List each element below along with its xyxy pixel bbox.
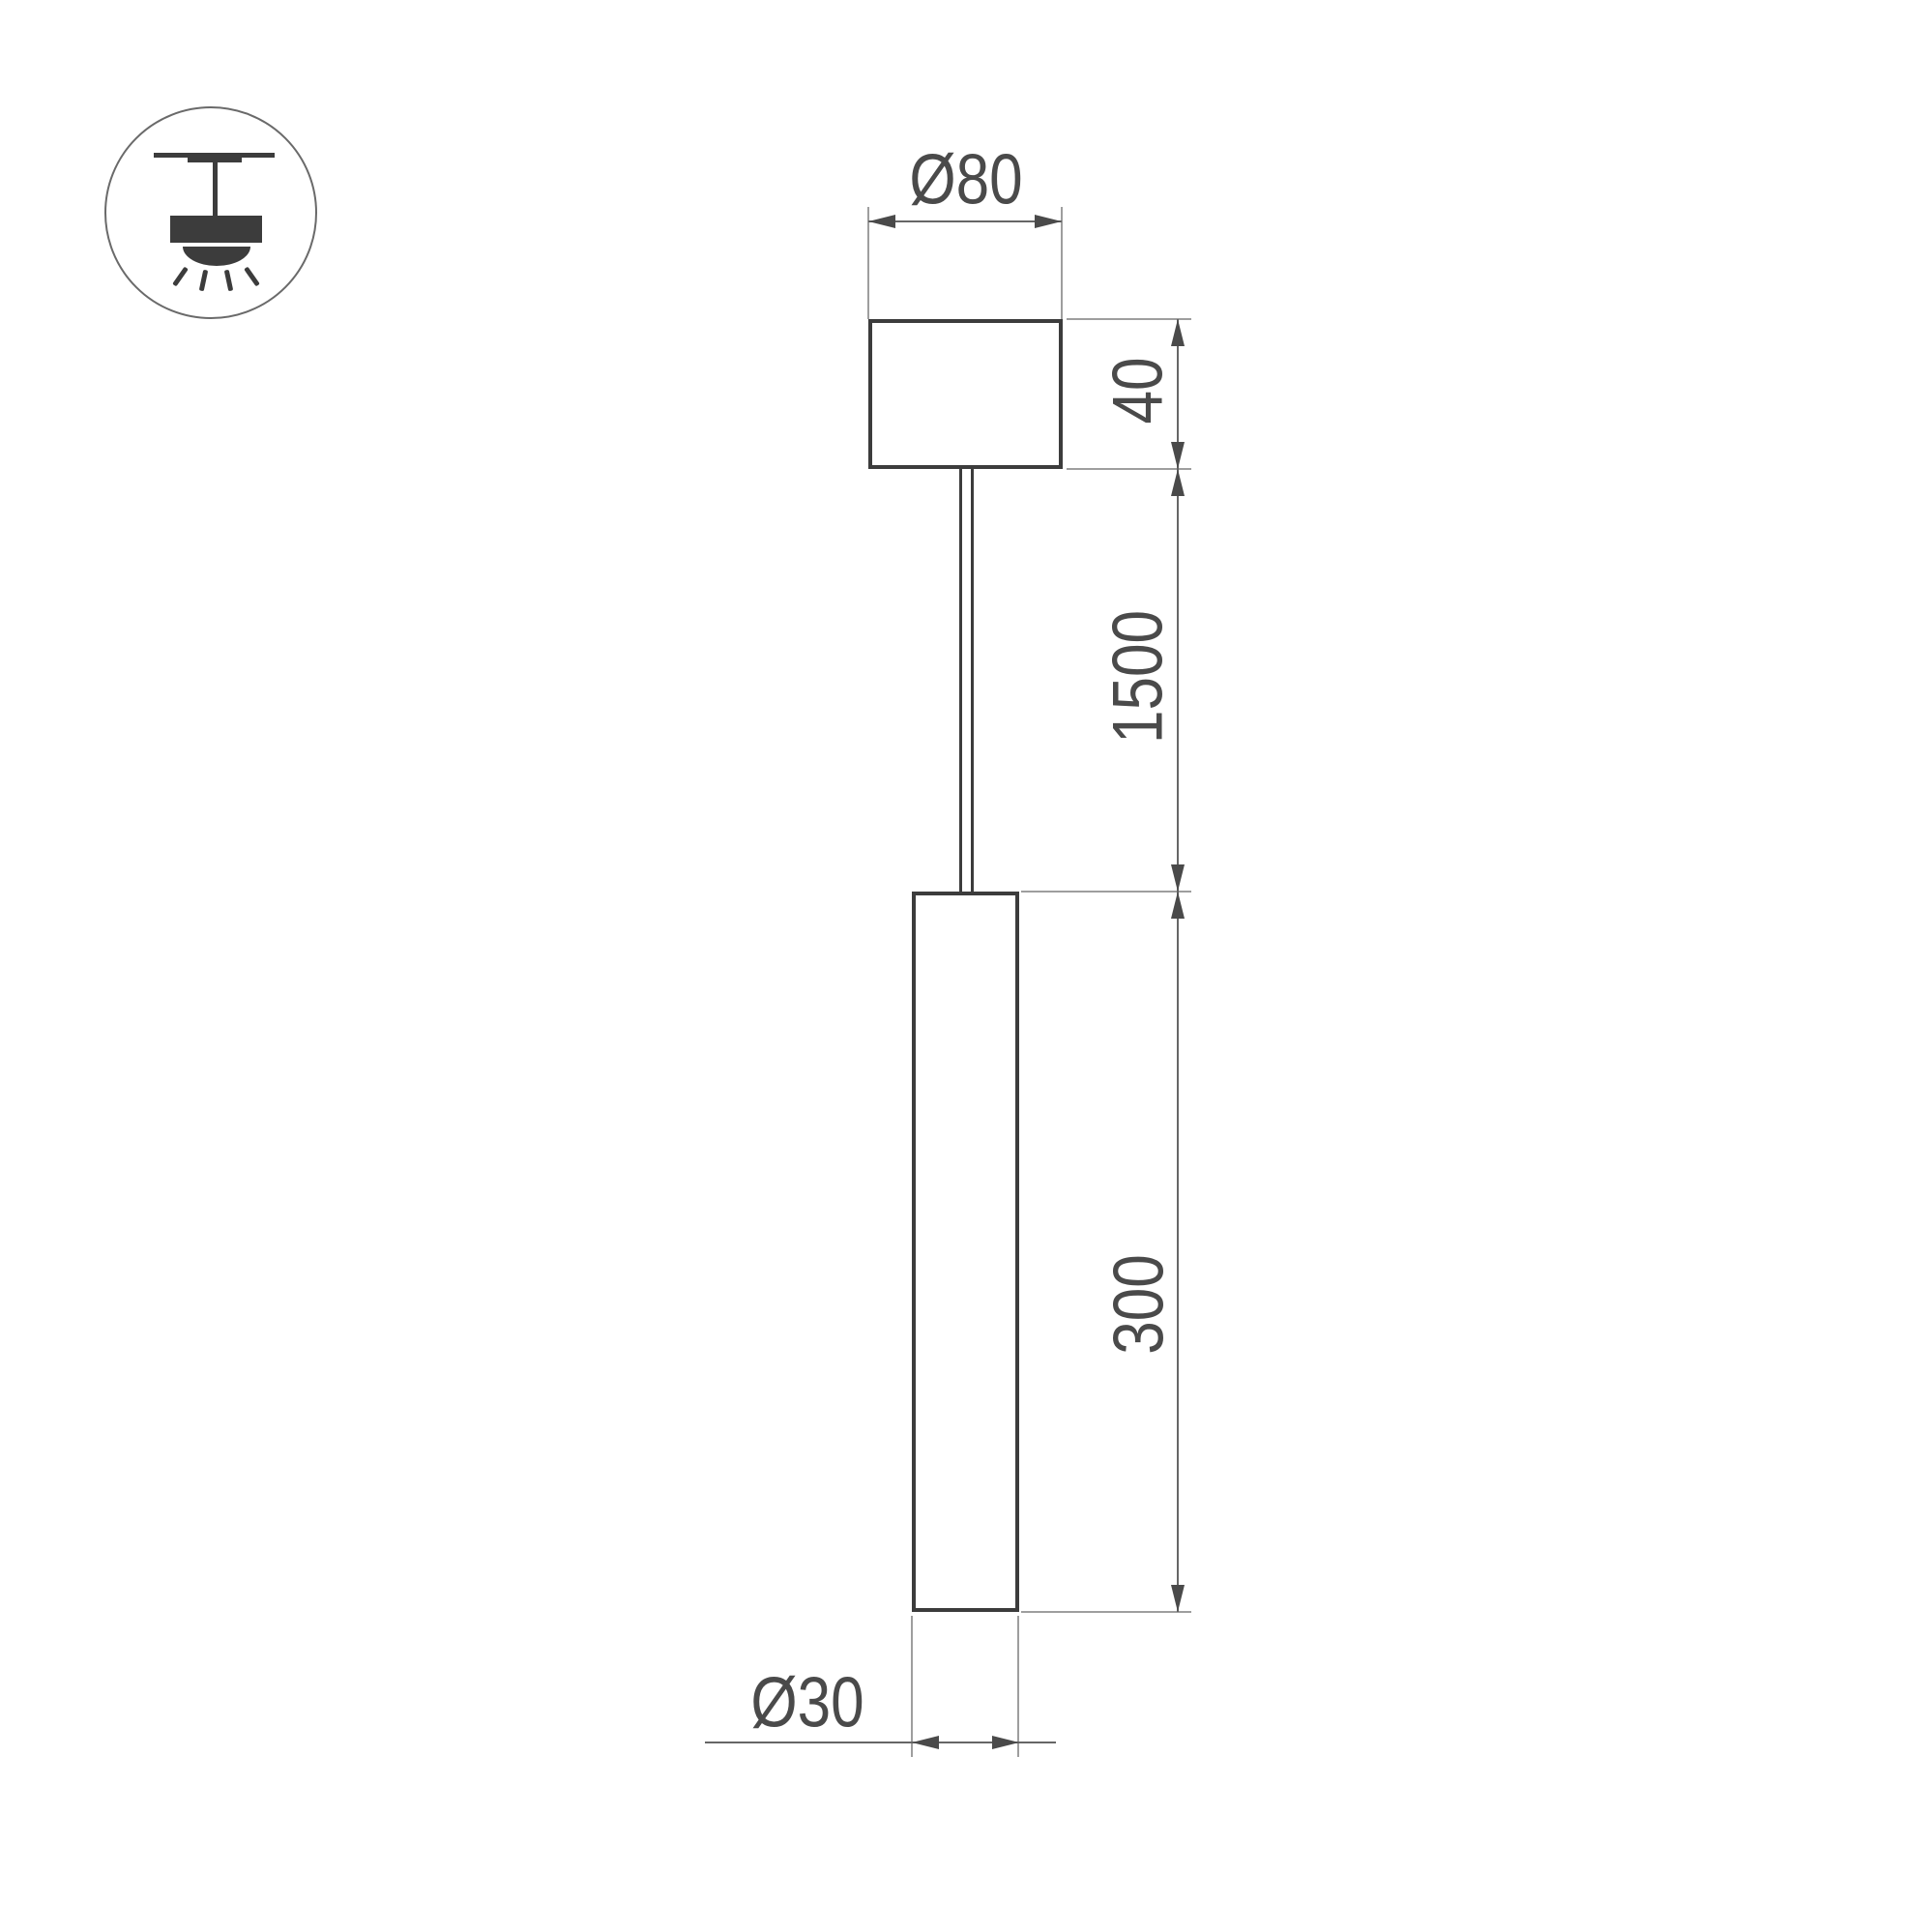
label-suspension-length: 1500 [1103, 610, 1174, 744]
dimension-drawing-canvas: Ø80 40 1500 300 Ø30 [0, 0, 1932, 1932]
label-tube-diameter: Ø30 [750, 1668, 864, 1739]
extension-line-tube-bottom [1021, 1611, 1191, 1613]
icon-light-ray [224, 270, 233, 292]
icon-light-dome [183, 247, 250, 266]
arrowhead-down-icon [1171, 864, 1185, 892]
icon-light-ray [172, 267, 189, 287]
mounting-type-badge [104, 106, 317, 319]
extension-line-tube-top [1021, 891, 1191, 893]
dimension-line-canopy-diameter [868, 220, 1062, 222]
suspension-wire [959, 469, 974, 892]
icon-suspension-stem [213, 161, 218, 217]
icon-lamp-body [170, 216, 262, 243]
icon-light-ray [199, 270, 208, 292]
canopy-outline [868, 319, 1063, 469]
arrowhead-up-icon [1171, 892, 1185, 919]
arrowhead-right-icon [1035, 215, 1062, 228]
label-canopy-diameter: Ø80 [909, 145, 1022, 216]
label-tube-length: 300 [1104, 1254, 1175, 1355]
arrowhead-down-icon [1171, 442, 1185, 469]
arrowhead-left-icon [868, 215, 895, 228]
dimension-line-vertical [1177, 319, 1179, 1612]
arrowhead-down-icon [1171, 1585, 1185, 1612]
label-canopy-height: 40 [1103, 357, 1174, 424]
arrowhead-up-icon [1171, 319, 1185, 346]
icon-light-ray [244, 267, 260, 287]
arrowhead-up-icon [1171, 469, 1185, 496]
lamp-tube-outline [912, 892, 1019, 1612]
arrowhead-left-icon [912, 1736, 939, 1749]
arrowhead-right-icon [992, 1736, 1019, 1749]
